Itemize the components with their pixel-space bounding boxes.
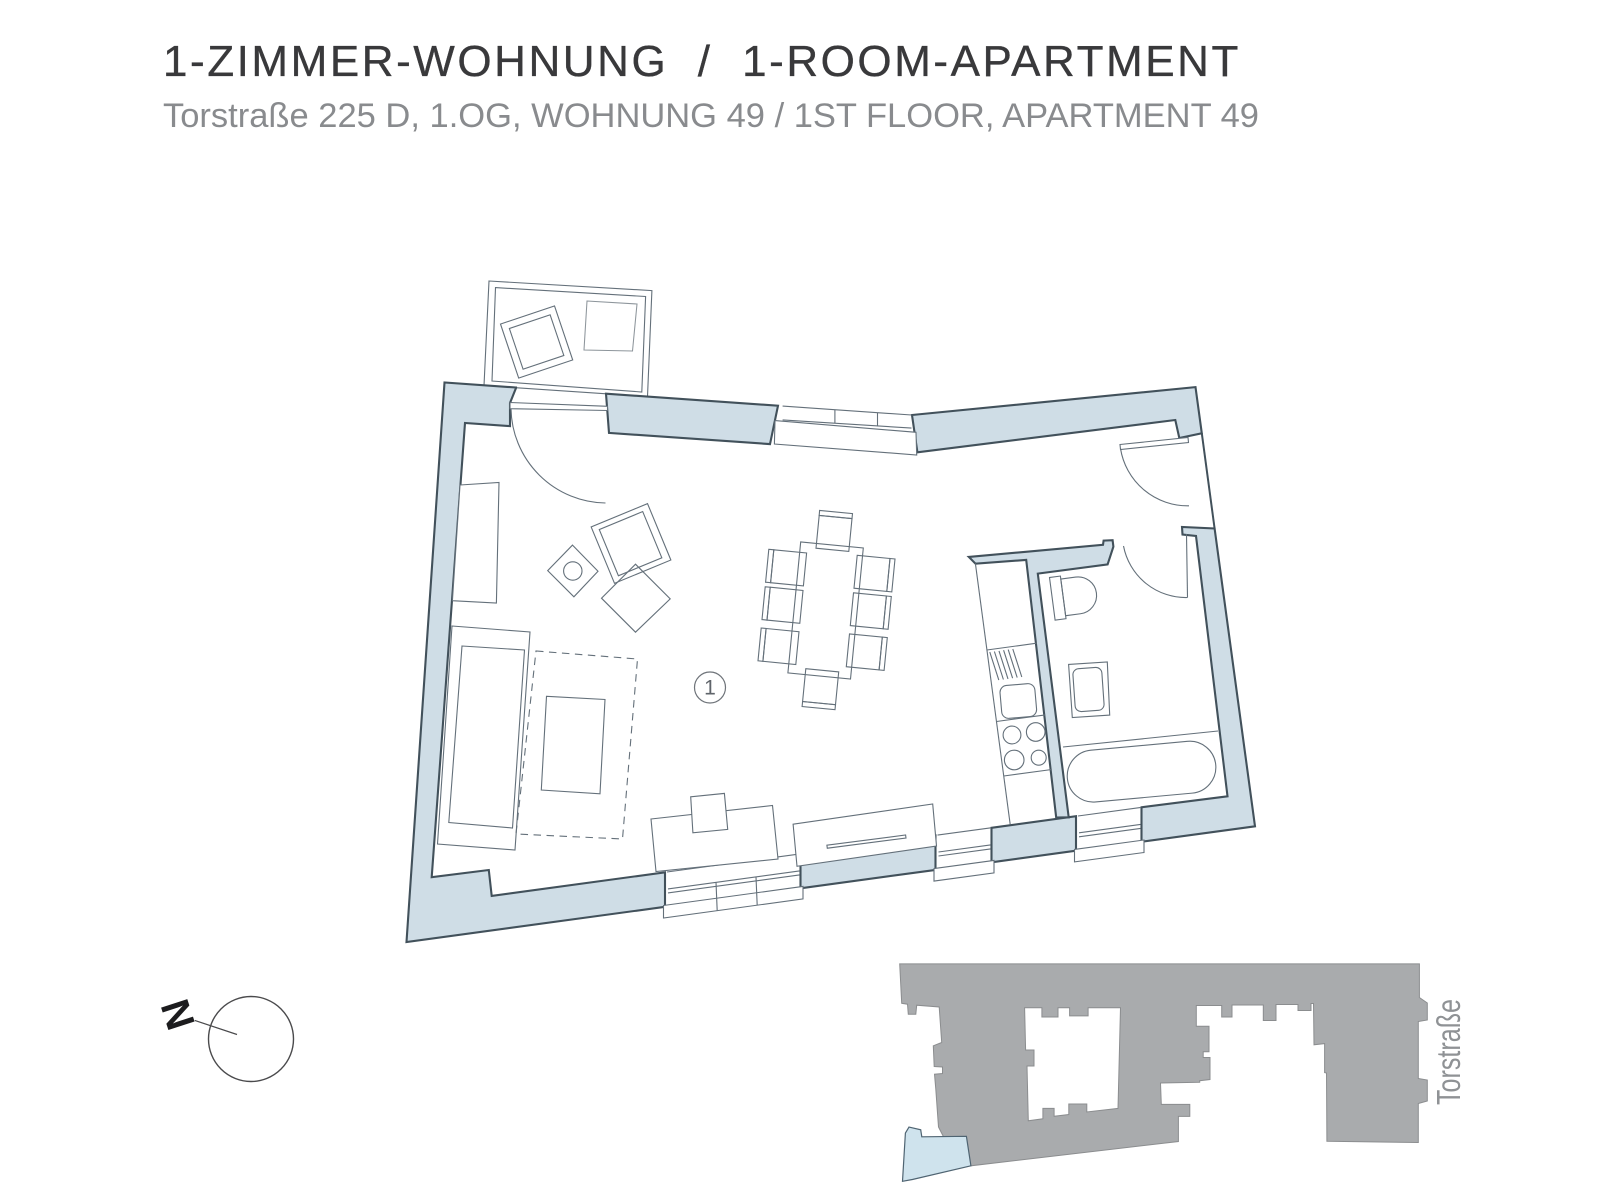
svg-text:1: 1 (704, 677, 716, 700)
svg-text:Torstraße: Torstraße (1430, 999, 1467, 1105)
